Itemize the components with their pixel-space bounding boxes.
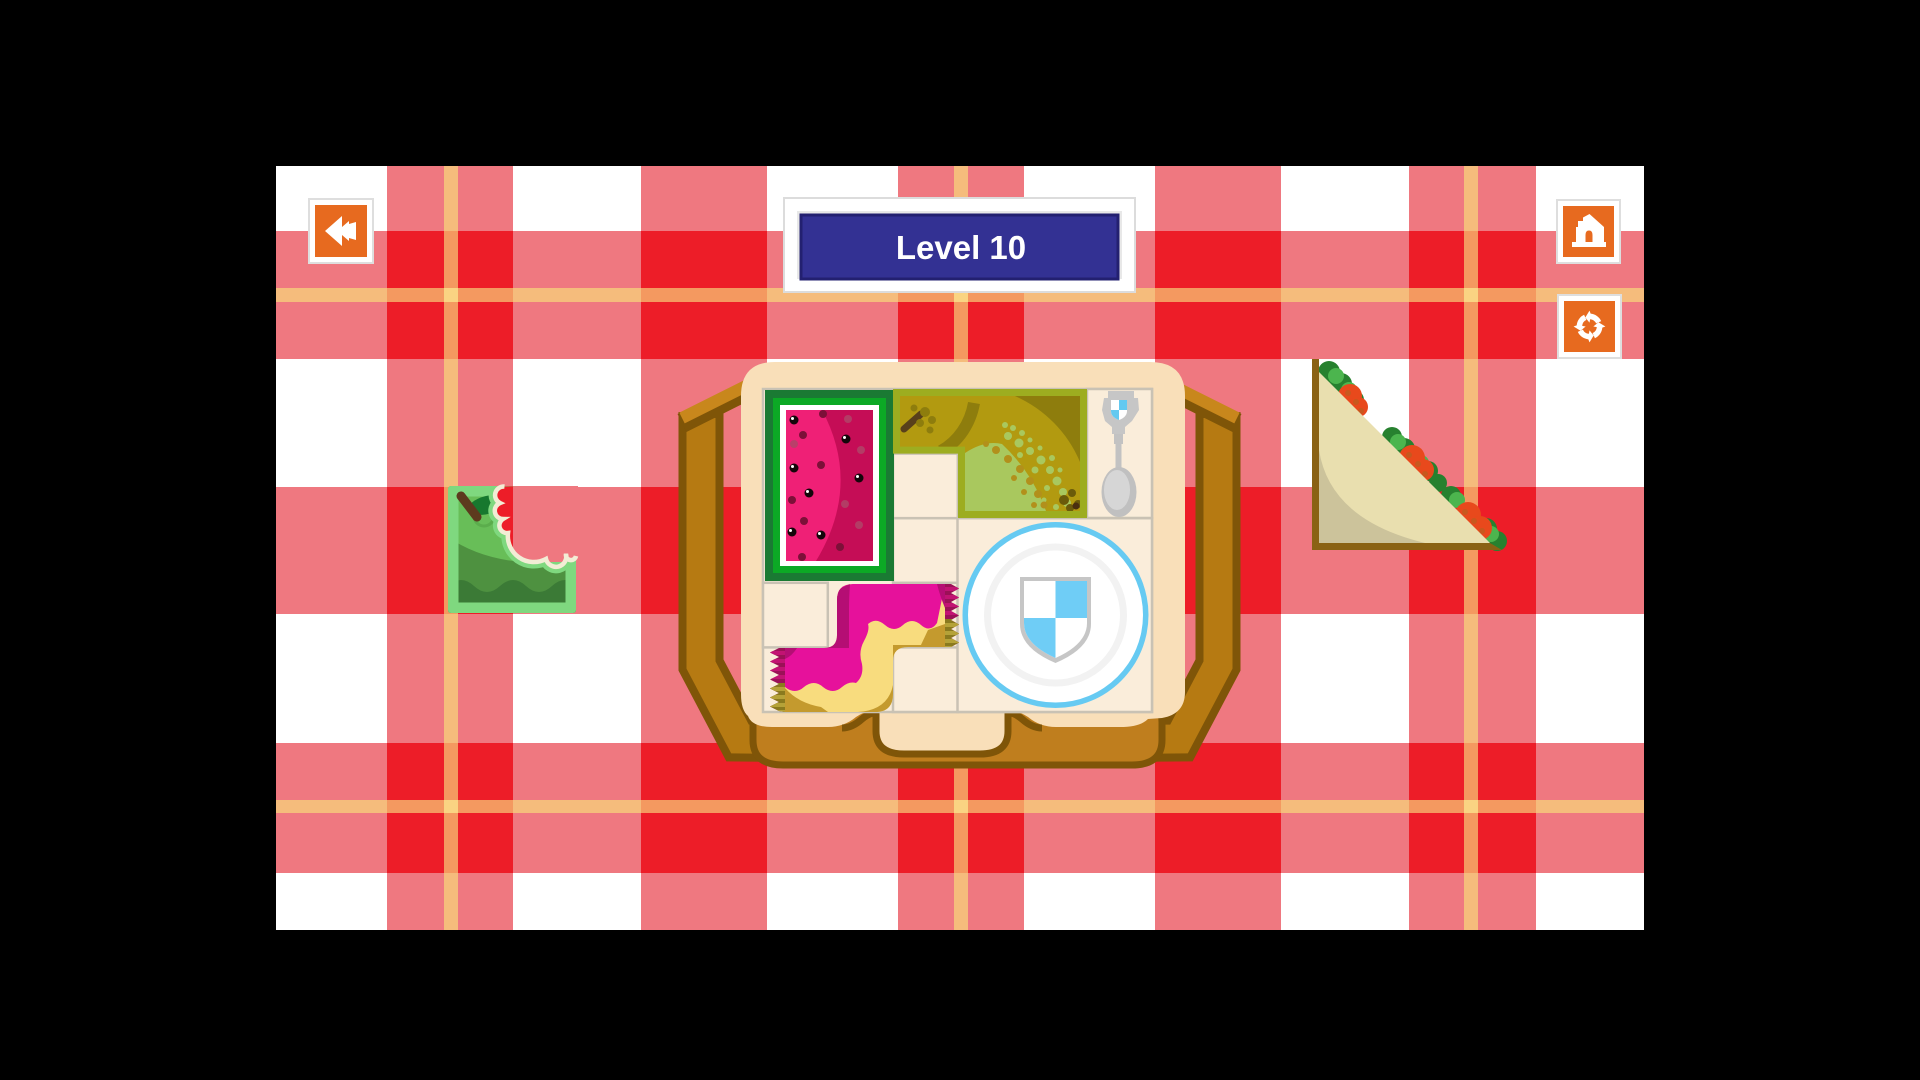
svg-text:Level 10: Level 10 — [896, 229, 1026, 266]
